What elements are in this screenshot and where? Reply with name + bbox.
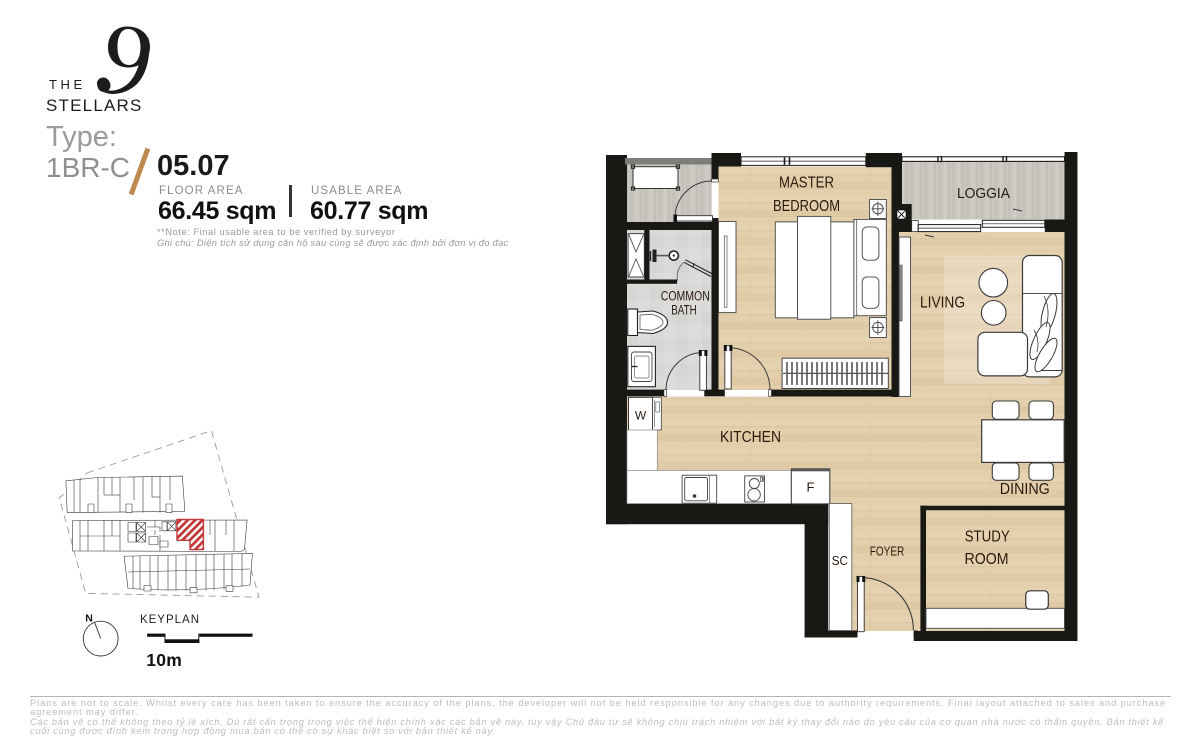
svg-text:ROOM: ROOM xyxy=(965,551,1009,568)
svg-text:MASTER: MASTER xyxy=(779,174,834,191)
svg-text:KEYPLAN: KEYPLAN xyxy=(140,614,200,626)
svg-text:F: F xyxy=(807,479,815,494)
svg-text:W: W xyxy=(635,408,647,422)
svg-text:KITCHEN: KITCHEN xyxy=(720,429,781,446)
svg-text:N: N xyxy=(85,613,93,625)
svg-text:SC: SC xyxy=(832,554,848,568)
svg-text:LOGGIA: LOGGIA xyxy=(957,185,1010,202)
svg-text:10m: 10m xyxy=(146,650,182,670)
svg-text:BATH: BATH xyxy=(671,303,697,318)
svg-text:LIVING: LIVING xyxy=(920,295,965,312)
svg-text:STUDY: STUDY xyxy=(965,529,1010,546)
svg-text:FOYER: FOYER xyxy=(870,543,905,558)
svg-text:BEDROOM: BEDROOM xyxy=(773,198,840,215)
svg-text:COMMON: COMMON xyxy=(661,289,710,304)
svg-text:DINING: DINING xyxy=(1000,481,1050,498)
